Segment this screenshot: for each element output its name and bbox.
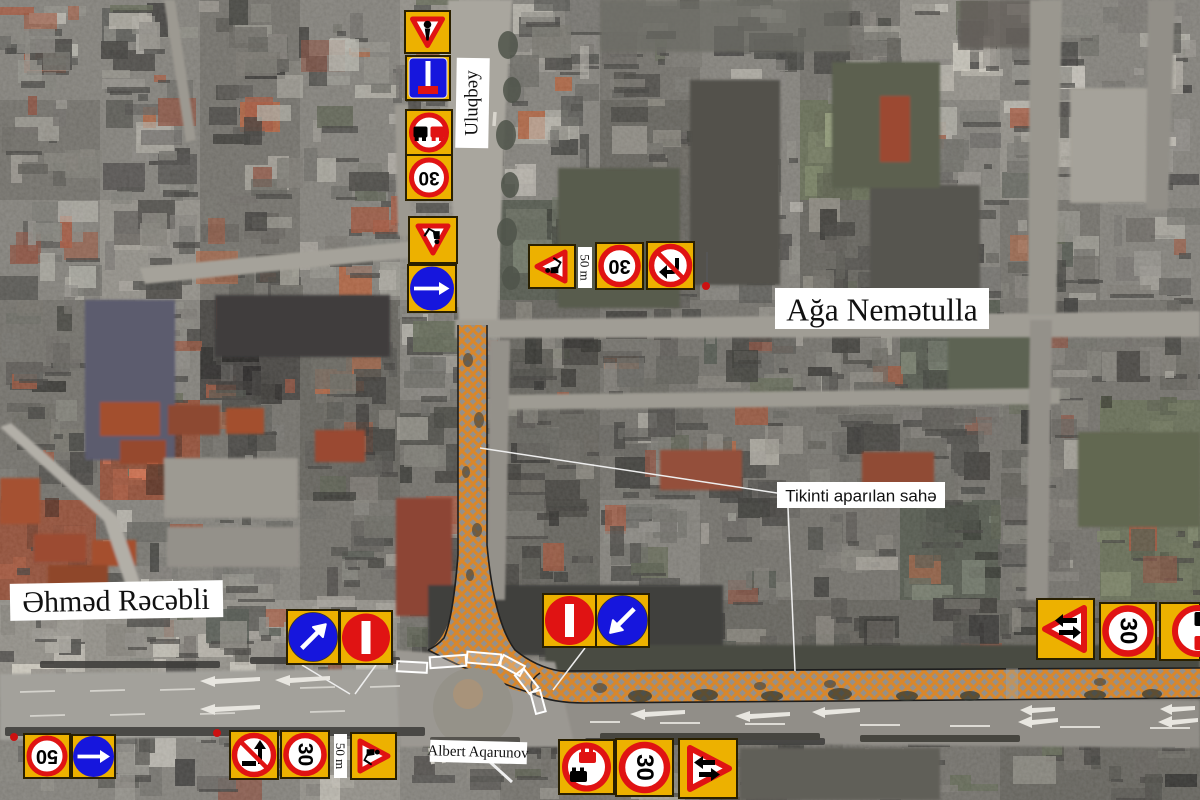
svg-text:Əhməd Rəcəbli: Əhməd Rəcəbli xyxy=(22,583,210,619)
svg-text:30: 30 xyxy=(608,255,630,277)
svg-text:Tikinti aparılan sahə: Tikinti aparılan sahə xyxy=(785,487,937,506)
svg-text:50: 50 xyxy=(36,745,58,767)
svg-text:Ağa Nemətulla: Ağa Nemətulla xyxy=(786,293,978,328)
svg-text:Albert Aqarunov: Albert Aqarunov xyxy=(427,743,529,762)
svg-text:30: 30 xyxy=(418,167,439,188)
svg-text:50 m: 50 m xyxy=(578,254,593,280)
svg-text:30: 30 xyxy=(631,754,658,781)
svg-text:30: 30 xyxy=(294,743,317,766)
svg-text:50 m: 50 m xyxy=(333,743,348,769)
svg-text:30: 30 xyxy=(1115,618,1142,645)
svg-text:Uluqbəy: Uluqbəy xyxy=(462,70,483,136)
